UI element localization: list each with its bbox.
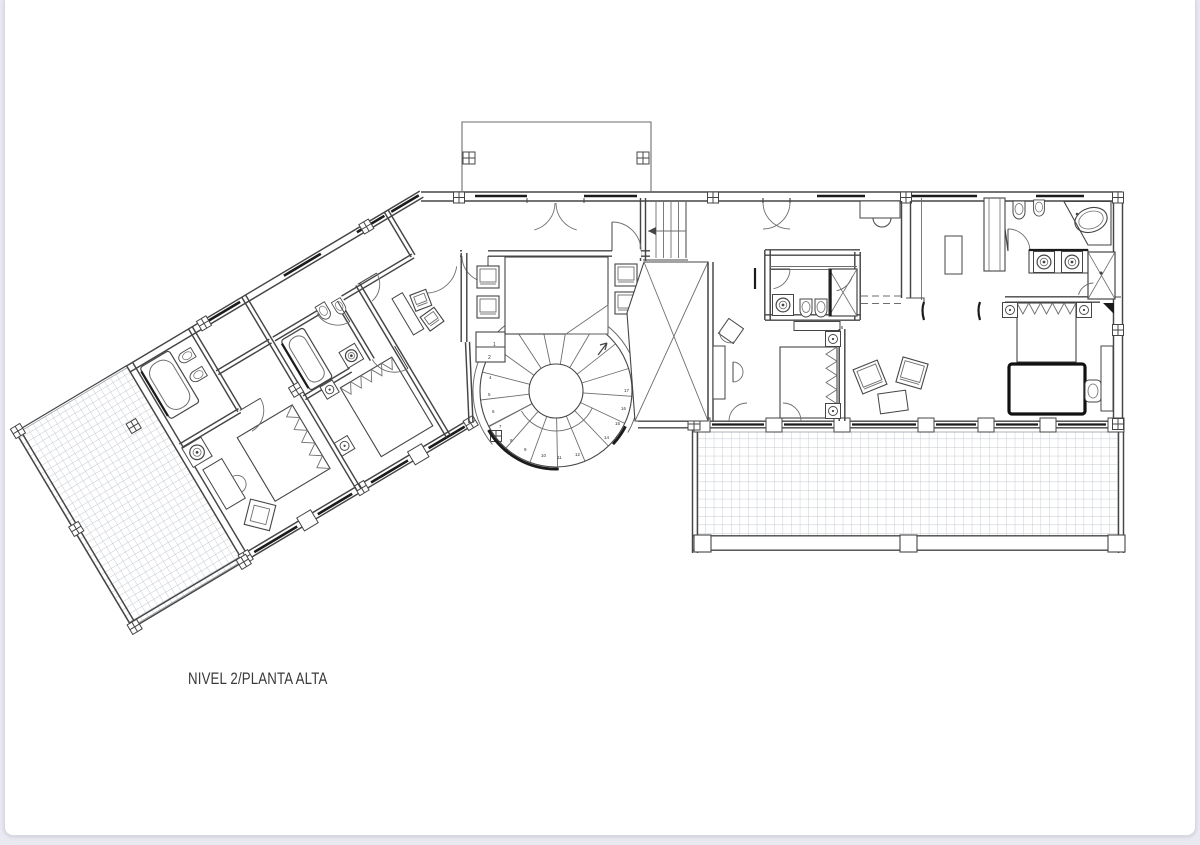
svg-text:4: 4 (489, 375, 492, 380)
svg-text:11: 11 (557, 455, 562, 460)
svg-text:17: 17 (624, 388, 630, 393)
svg-text:7: 7 (499, 424, 502, 429)
svg-text:15: 15 (615, 421, 621, 426)
svg-text:2: 2 (488, 355, 491, 361)
svg-text:NIVEL 2/PLANTA ALTA: NIVEL 2/PLANTA ALTA (188, 670, 328, 689)
svg-text:14: 14 (604, 435, 610, 440)
svg-text:6: 6 (492, 409, 495, 414)
svg-text:16: 16 (621, 406, 627, 411)
svg-text:5: 5 (488, 392, 491, 397)
svg-text:10: 10 (541, 453, 547, 458)
svg-text:9: 9 (524, 447, 527, 452)
svg-text:12: 12 (575, 452, 581, 457)
svg-text:1: 1 (493, 342, 496, 348)
